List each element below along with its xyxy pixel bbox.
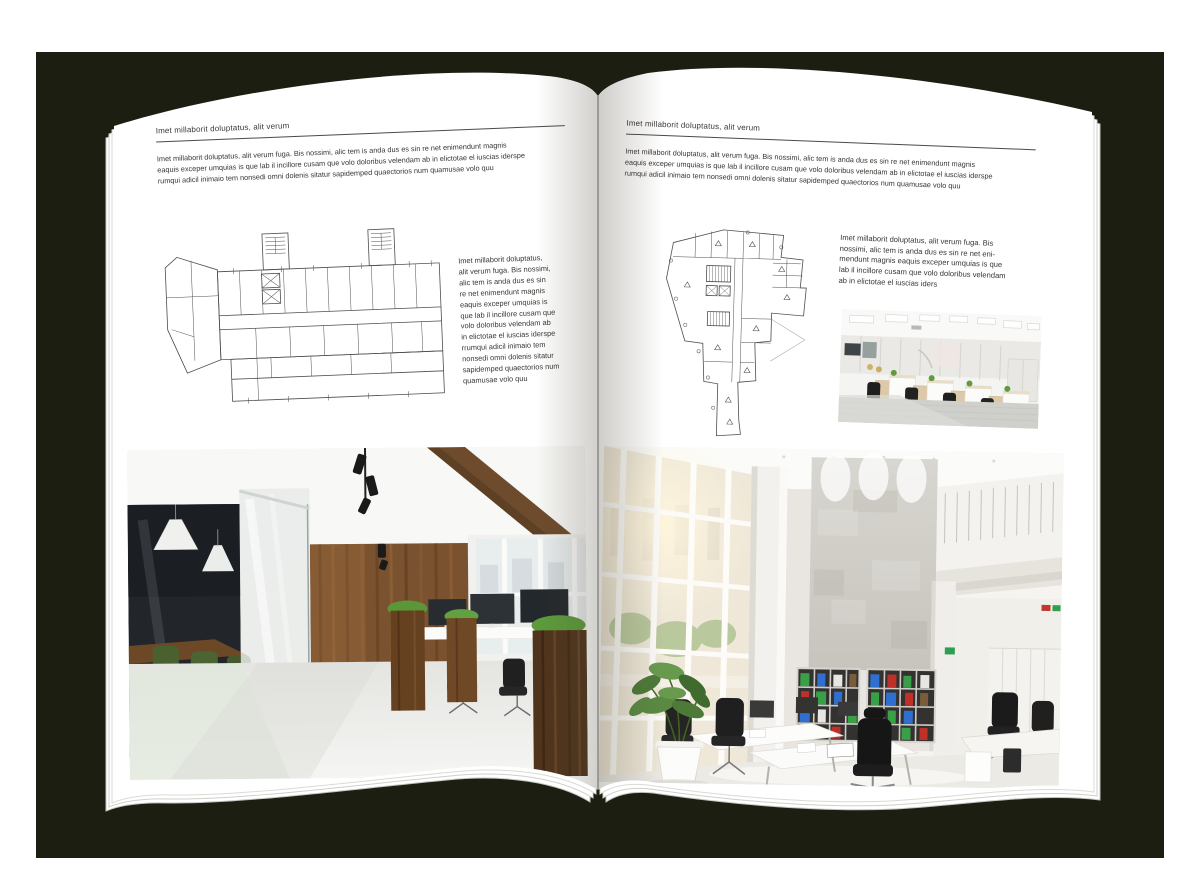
right-page-content: Imet millaborit doluptatus, alit verum I… — [608, 82, 1111, 198]
exit-sign — [945, 647, 955, 654]
mezzanine-balcony — [936, 471, 1064, 599]
right-side-paragraph: Imet millaborit doluptatus, alit verum f… — [838, 233, 1055, 295]
concrete-wall — [809, 451, 938, 671]
magazine-spread-mockup: Imet millaborit doluptatus, alit verum I… — [0, 0, 1200, 891]
left-page-content: Imet millaborit doluptatus, alit verum I… — [118, 68, 622, 189]
small-office-photo — [838, 309, 1042, 429]
left-side-paragraph: Imet millaborit doluptatus, alit verum f… — [458, 250, 613, 387]
left-office-photo — [127, 446, 588, 780]
